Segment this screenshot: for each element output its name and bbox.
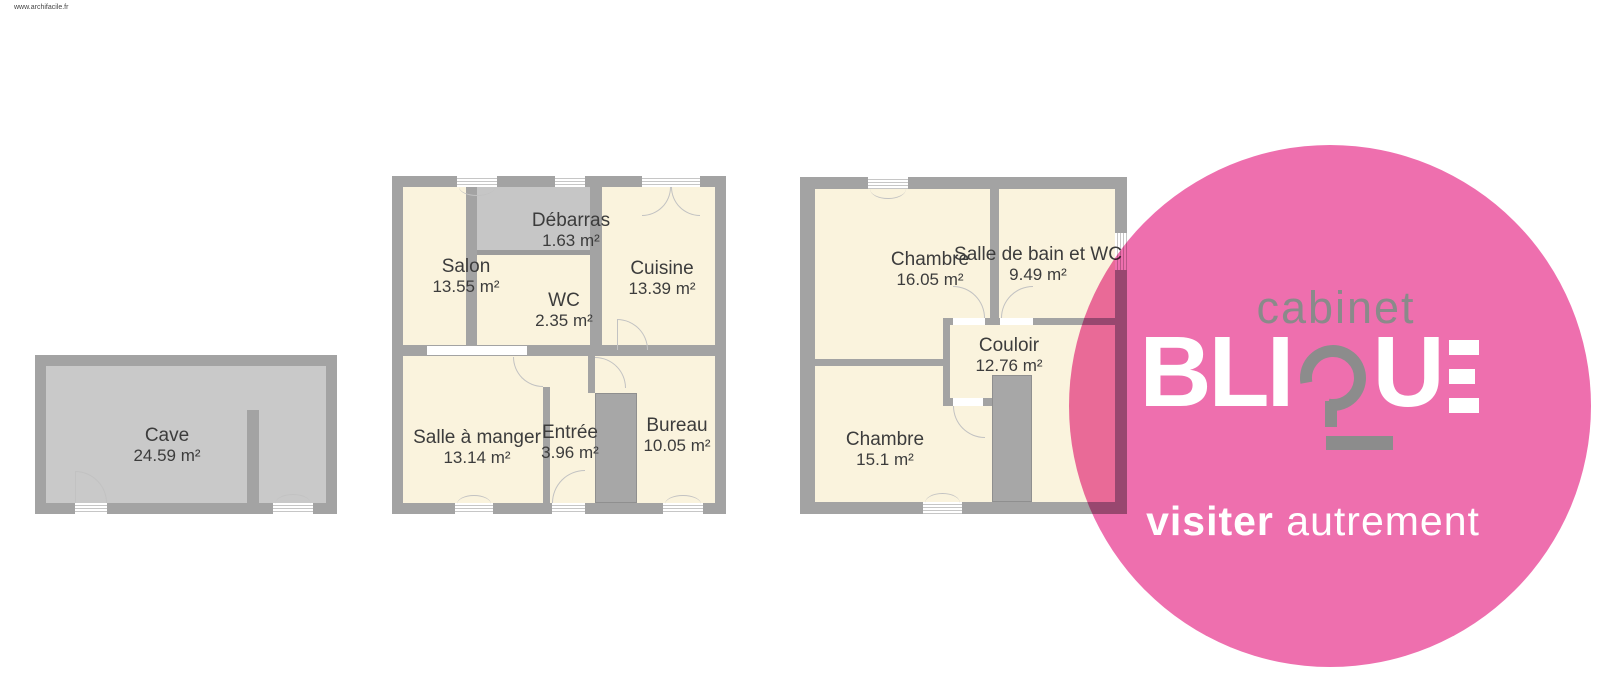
tagline-autrement: autrement [1286, 498, 1480, 544]
wall [943, 325, 950, 405]
room-label-salon: Salon 13.55 m² [432, 257, 499, 297]
door-leaf [953, 398, 983, 406]
wall [247, 410, 259, 503]
window [555, 176, 585, 187]
logo-brand-letter-u: U [1372, 322, 1441, 422]
letter-e-bars-icon [1449, 340, 1479, 413]
wall [588, 356, 595, 393]
entrance-door [552, 503, 585, 514]
wall [815, 359, 950, 366]
window [923, 502, 962, 514]
staircase [595, 393, 637, 503]
window [868, 177, 908, 189]
room-label-entree: Entrée 3.96 m² [541, 423, 599, 463]
room-label-cuisine: Cuisine 13.39 m² [628, 259, 695, 299]
room-label-cave: Cave 24.59 m² [133, 426, 200, 466]
french-door [642, 176, 700, 187]
letter-q-mark-icon [1296, 343, 1370, 455]
logo-brand-letters-bli: BLI [1139, 322, 1291, 422]
wall [35, 355, 337, 366]
window [663, 503, 703, 514]
wall [35, 366, 46, 503]
door-leaf [953, 318, 985, 325]
wall [800, 189, 815, 502]
room-label-chambre-2: Chambre 15.1 m² [846, 430, 924, 470]
room-label-debarras: Débarras 1.63 m² [532, 211, 610, 251]
logo-brand-row: BLI U [1048, 322, 1570, 455]
window [457, 176, 497, 187]
floor-plan-page: www.archifacile.fr [0, 0, 1600, 675]
room-label-salle-a-manger: Salle à manger 13.14 m² [413, 428, 541, 468]
window [273, 503, 313, 514]
brand-logo: cabinet BLI U visiter autrement [1069, 145, 1591, 667]
door-threshold [75, 503, 107, 514]
door-leaf [1000, 318, 1033, 325]
wall [326, 366, 337, 503]
logo-tagline: visiter autrement [1052, 498, 1574, 545]
room-label-wc: WC 2.35 m² [535, 291, 593, 331]
window [455, 503, 493, 514]
room-label-bureau: Bureau 10.05 m² [643, 416, 710, 456]
watermark: www.archifacile.fr [14, 4, 68, 11]
tagline-visiter: visiter [1146, 498, 1274, 544]
room-label-couloir: Couloir 12.76 m² [975, 336, 1042, 376]
wall-opening [427, 346, 527, 355]
staircase [992, 375, 1032, 502]
